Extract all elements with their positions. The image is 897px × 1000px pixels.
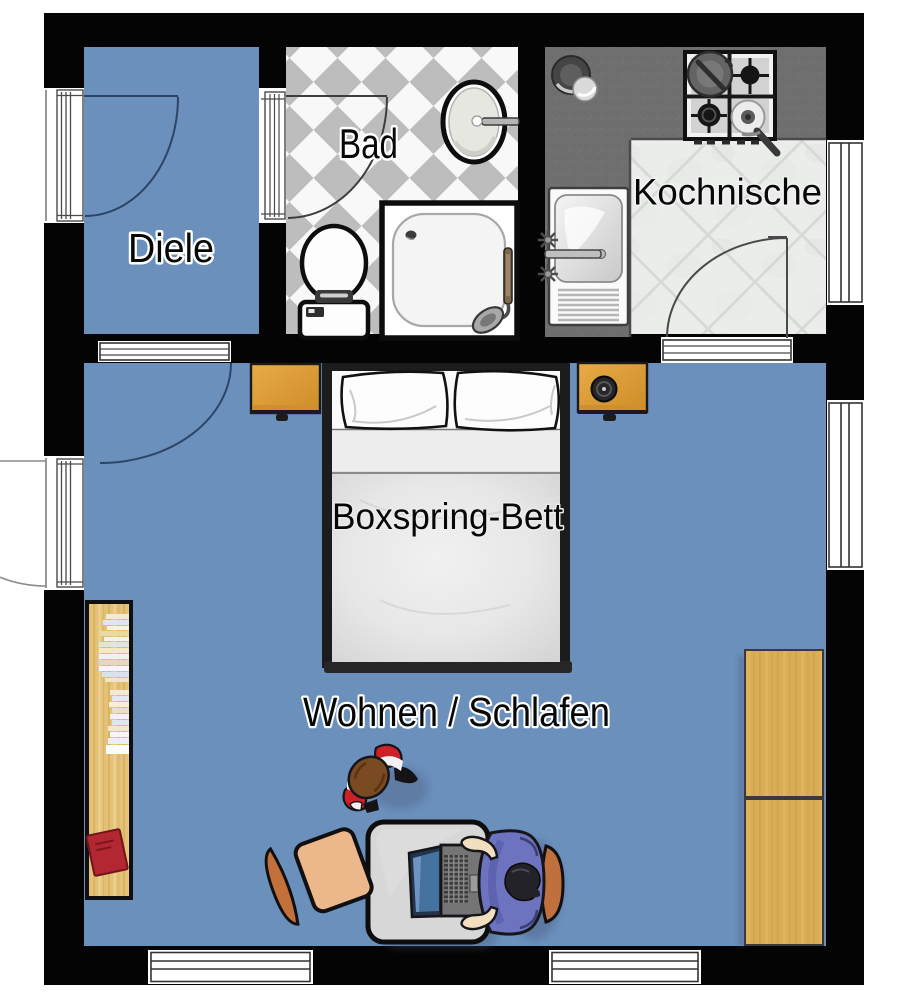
svg-text:Kochnische: Kochnische — [633, 171, 822, 213]
svg-text:Bad: Bad — [339, 120, 398, 167]
svg-text:Diele: Diele — [128, 225, 214, 271]
svg-text:Boxspring-Bett: Boxspring-Bett — [332, 496, 564, 537]
svg-text:Wohnen / Schlafen: Wohnen / Schlafen — [303, 689, 610, 735]
